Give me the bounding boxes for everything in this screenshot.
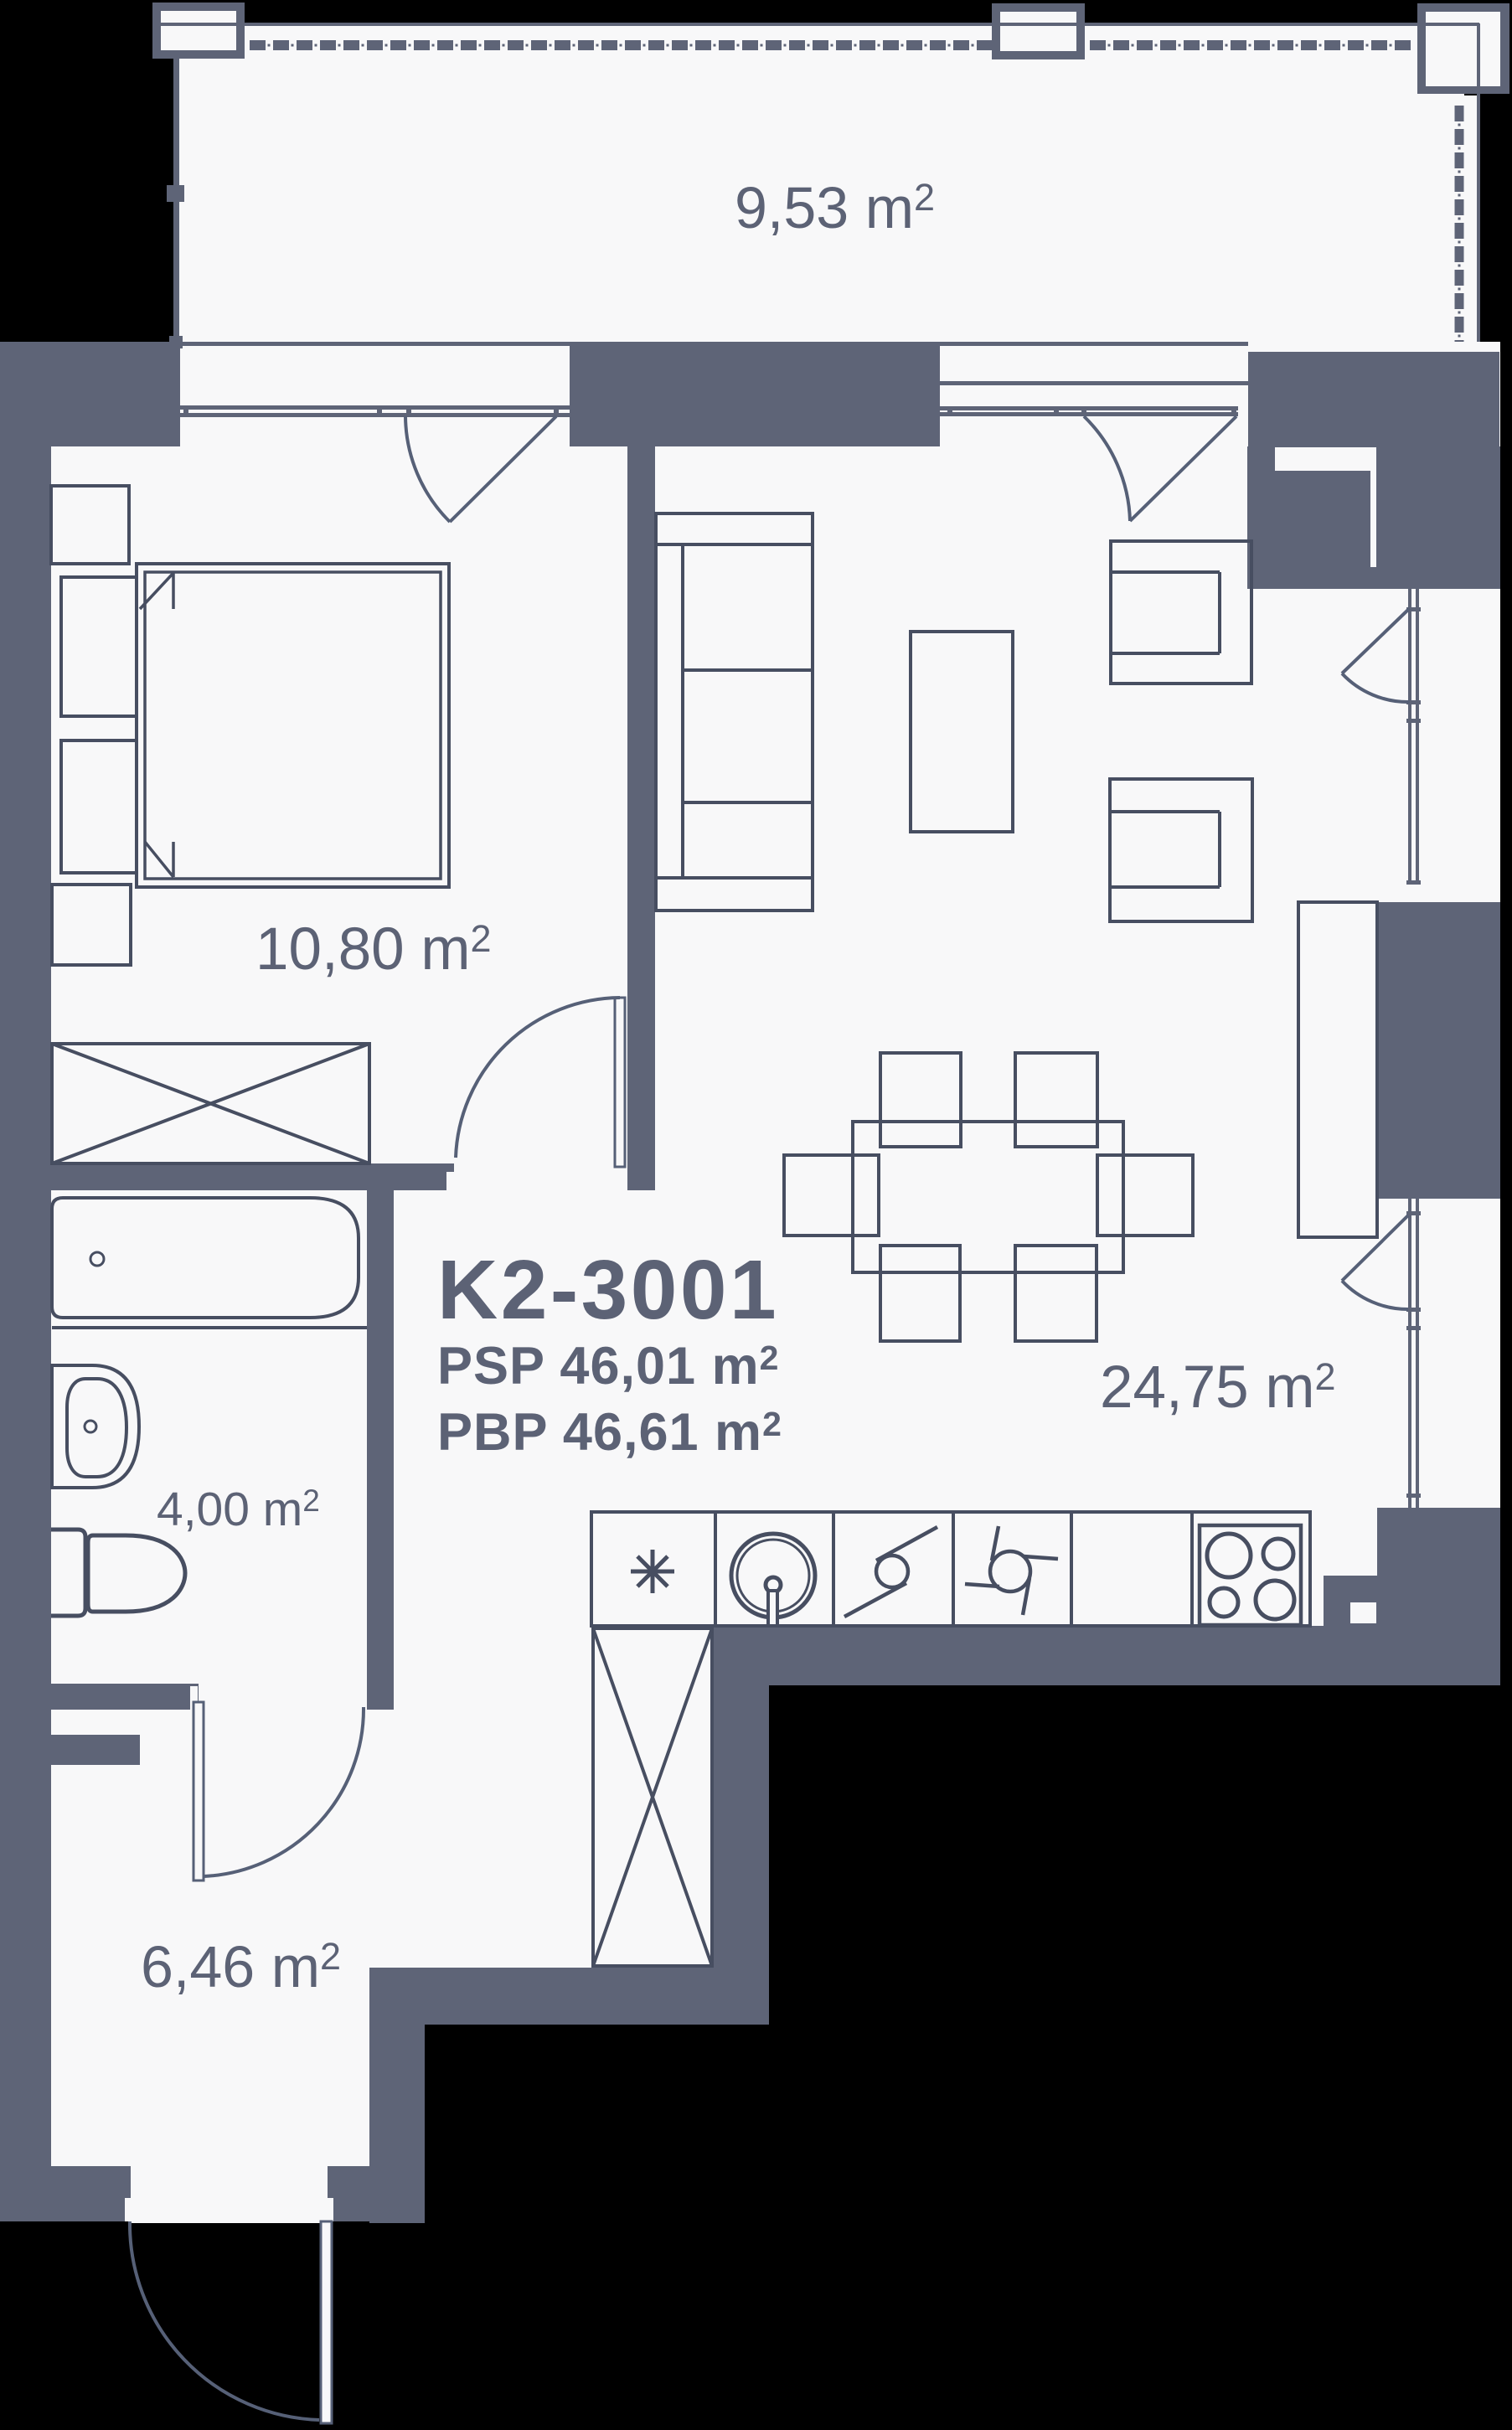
svg-text:K2-3001: K2-3001 — [437, 1243, 779, 1337]
svg-text:PBP 46,61 m2: PBP 46,61 m2 — [437, 1403, 782, 1462]
svg-text:10,80 m2: 10,80 m2 — [255, 916, 492, 983]
svg-text:9,53 m2: 9,53 m2 — [735, 175, 935, 240]
svg-text:6,46 m2: 6,46 m2 — [141, 1934, 341, 1999]
svg-text:24,75 m2: 24,75 m2 — [1100, 1354, 1336, 1421]
svg-text:4,00 m2: 4,00 m2 — [157, 1483, 320, 1536]
svg-text:PSP 46,01 m2: PSP 46,01 m2 — [437, 1337, 779, 1396]
